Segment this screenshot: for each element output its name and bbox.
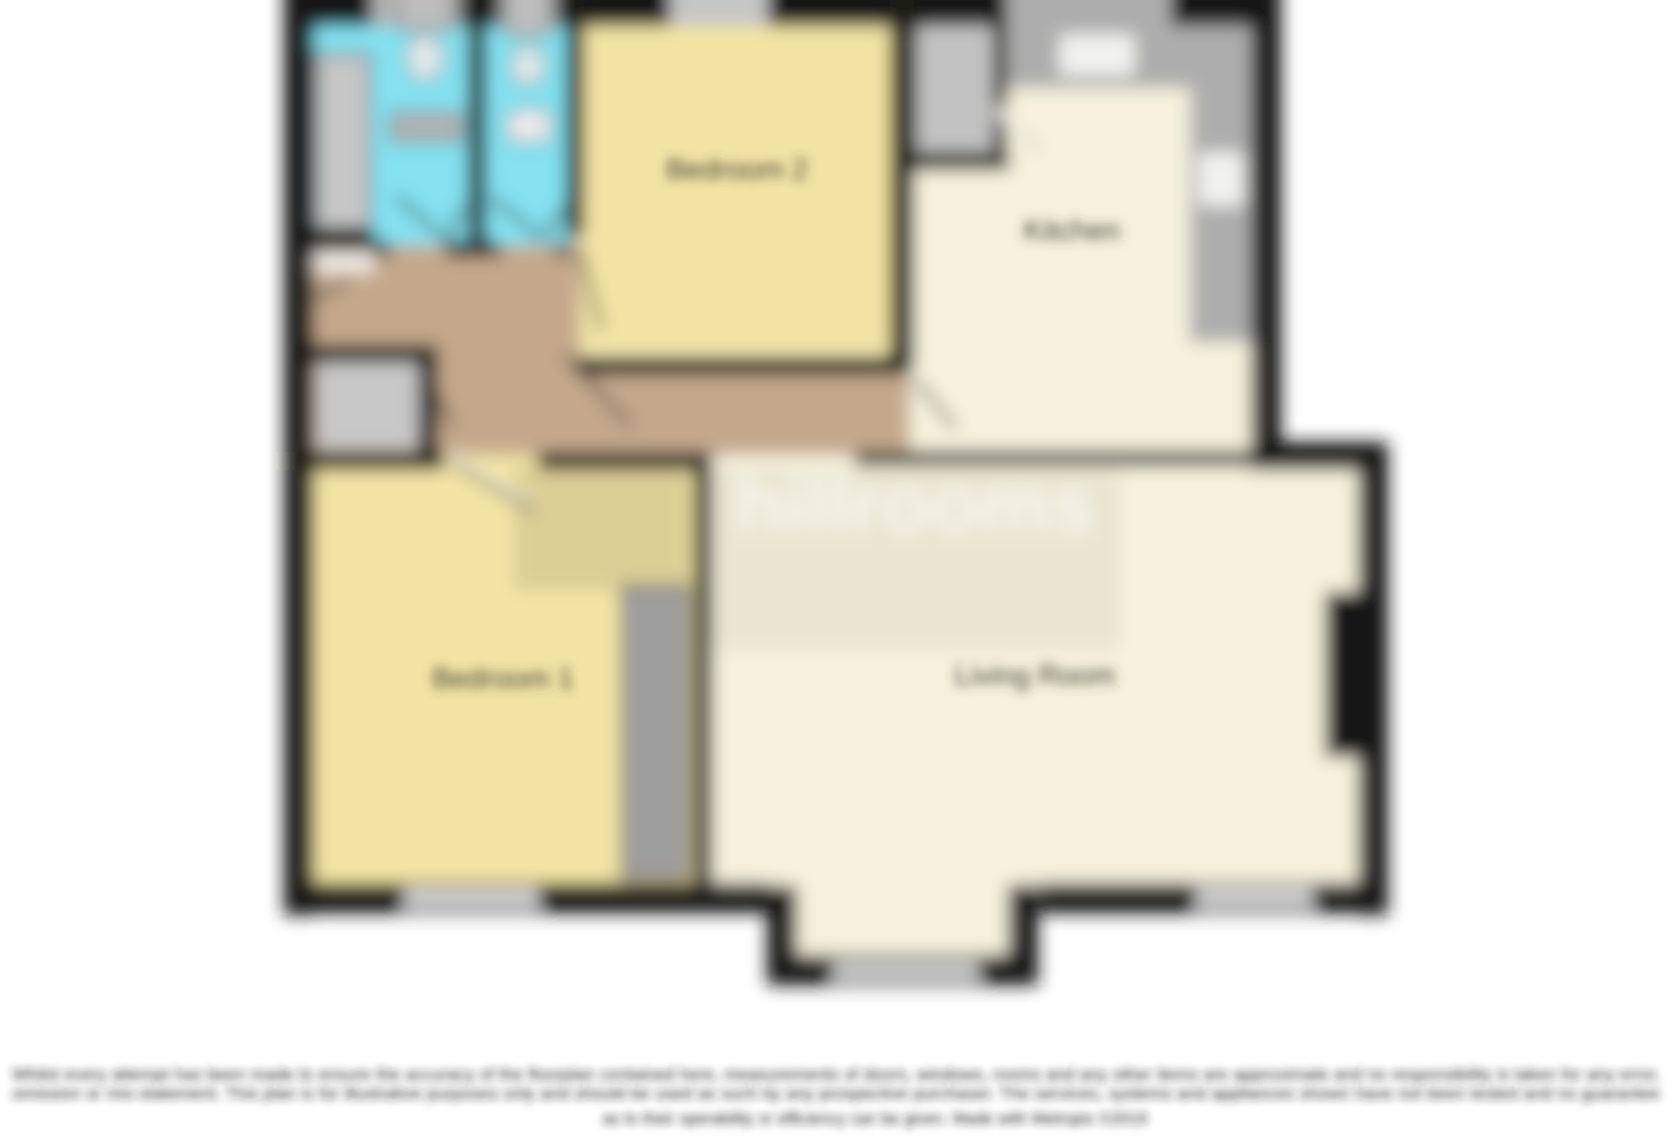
svg-text:Bedroom 1: Bedroom 1 bbox=[432, 663, 574, 695]
svg-text:omission or mis-statement. Thi: omission or mis-statement. This plan is … bbox=[12, 1084, 1660, 1103]
svg-text:as to their operability or eff: as to their operability or efficiency ca… bbox=[603, 1109, 1148, 1128]
svg-text:Whilst every attempt has been: Whilst every attempt has been made to en… bbox=[12, 1065, 1660, 1084]
svg-text:hillrooms: hillrooms bbox=[735, 460, 1095, 549]
svg-text:Kitchen: Kitchen bbox=[1024, 215, 1121, 247]
svg-text:Living Room: Living Room bbox=[954, 660, 1115, 692]
svg-text:Bedroom 2: Bedroom 2 bbox=[666, 154, 808, 186]
